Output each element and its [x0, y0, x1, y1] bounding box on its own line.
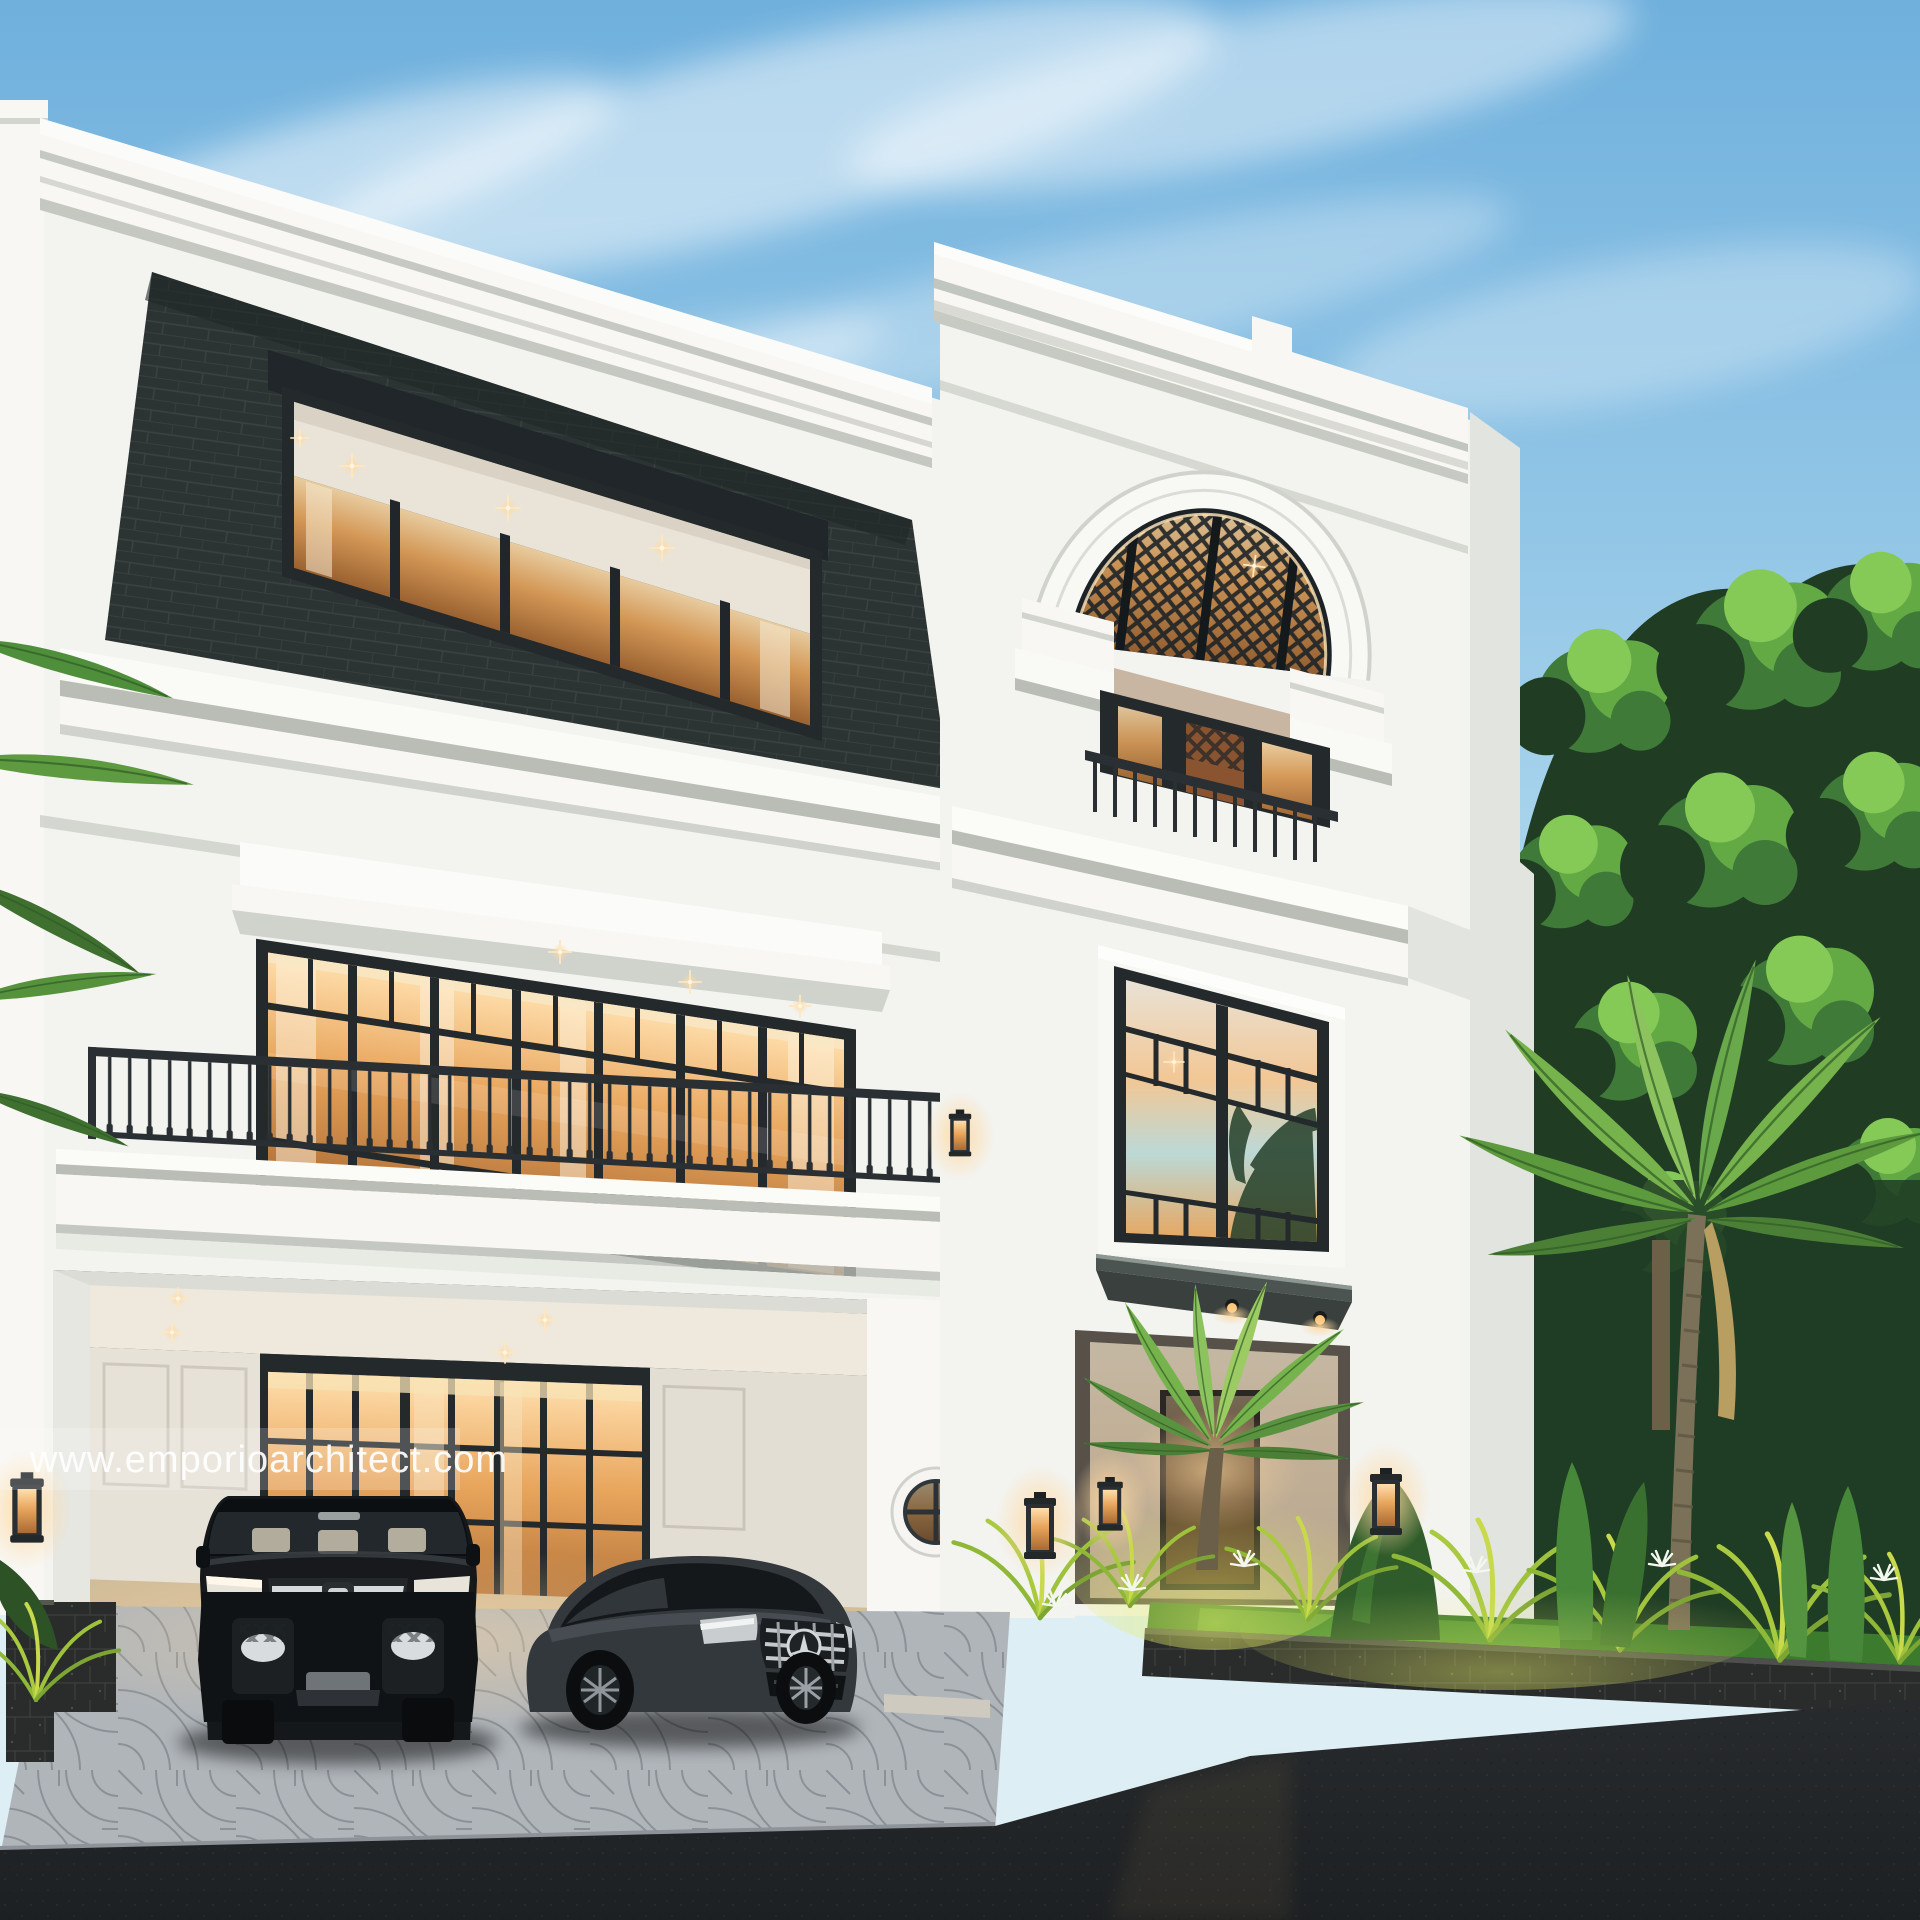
right-tree-canopy — [1484, 552, 1920, 1660]
entry-tower-facade — [934, 242, 1534, 1620]
black-luxury-mpv — [178, 1496, 498, 1764]
wall-lantern-porch-left — [1024, 1492, 1056, 1559]
background-palm-trunk — [1652, 1240, 1670, 1430]
render-canvas: www.emporioarchitect.com — [0, 0, 1920, 1920]
watermark: www.emporioarchitect.com — [0, 1428, 508, 1490]
wall-lantern-balcony — [949, 1110, 971, 1157]
wall-lantern-right — [1370, 1468, 1402, 1535]
watermark-text: www.emporioarchitect.com — [29, 1439, 508, 1481]
corner-pilaster — [0, 100, 48, 1615]
architectural-render: www.emporioarchitect.com — [0, 0, 1920, 1920]
wall-lantern-porch-inner — [1097, 1477, 1123, 1531]
